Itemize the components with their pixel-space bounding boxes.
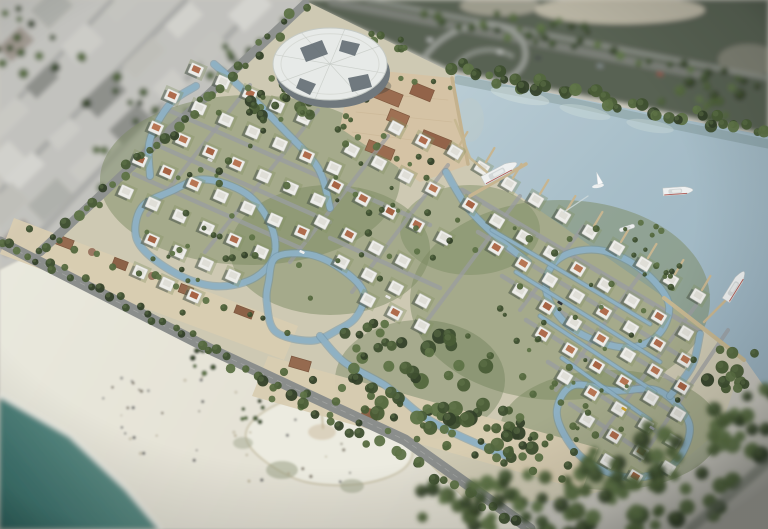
region <box>0 0 768 529</box>
masterplan-scene <box>0 0 768 529</box>
atmosphere <box>0 0 768 529</box>
aerial-render <box>0 0 768 529</box>
